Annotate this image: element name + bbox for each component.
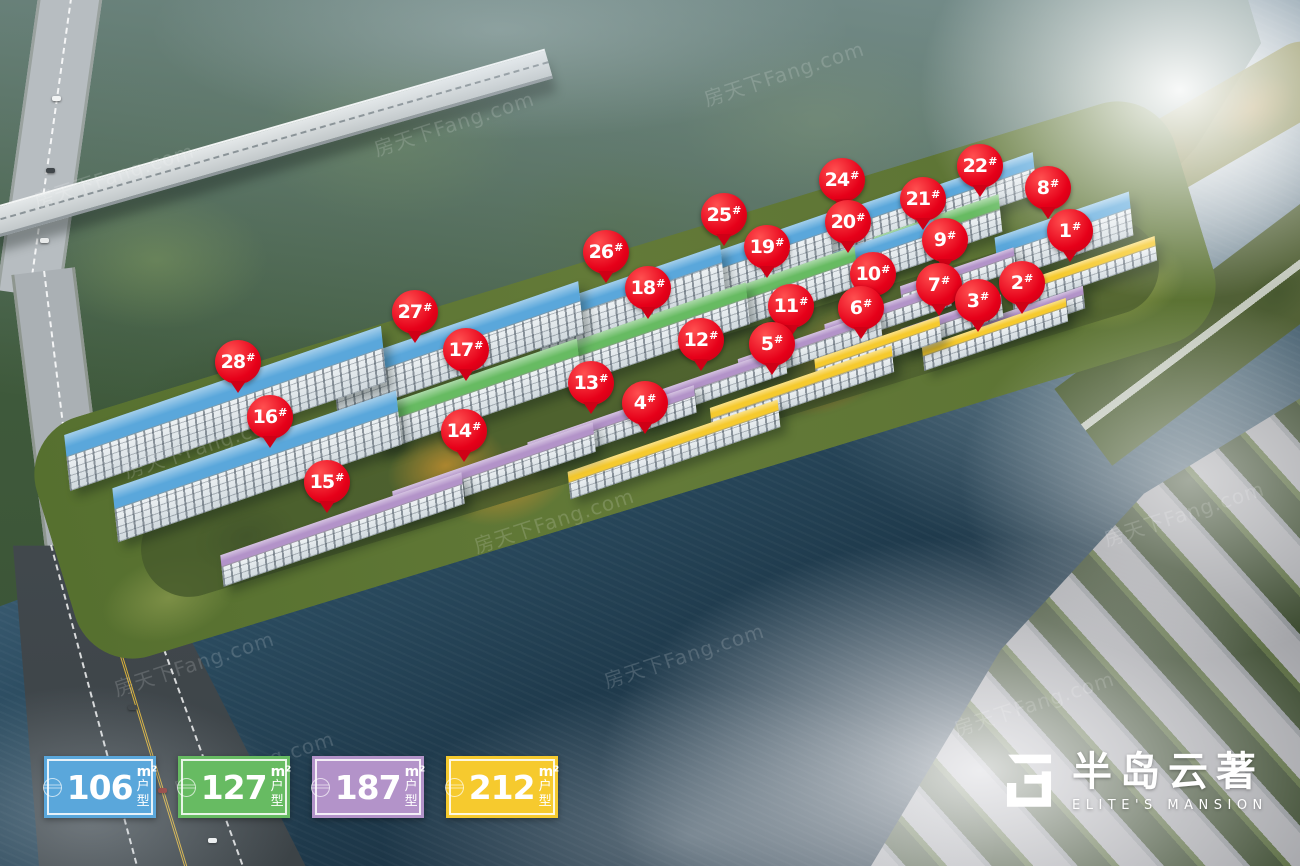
seal-icon: [311, 778, 330, 797]
legend-area-value: 212: [469, 771, 535, 804]
logo-english-name: ELITE'S MANSION: [1072, 798, 1268, 813]
building-marker-19[interactable]: 19#: [744, 225, 790, 269]
building-marker-22[interactable]: 22#: [957, 144, 1003, 188]
legend-area-value: 187: [335, 771, 401, 804]
building-marker-17[interactable]: 17#: [443, 328, 489, 372]
building-marker-5[interactable]: 5#: [749, 322, 795, 366]
building-marker-3[interactable]: 3#: [955, 279, 1001, 323]
seal-icon: [445, 778, 464, 797]
building-marker-27[interactable]: 27#: [392, 290, 438, 334]
legend-item-127: 127m²户型: [178, 756, 290, 818]
building-marker-14[interactable]: 14#: [441, 409, 487, 453]
building-marker-26[interactable]: 26#: [583, 230, 629, 274]
building-marker-21[interactable]: 21#: [900, 177, 946, 221]
building-marker-12[interactable]: 12#: [678, 318, 724, 362]
seal-icon: [43, 778, 62, 797]
legend-type-label: 户型: [137, 780, 158, 809]
building-marker-15[interactable]: 15#: [304, 460, 350, 504]
car: [46, 168, 55, 173]
building-marker-4[interactable]: 4#: [622, 381, 668, 425]
building-marker-8[interactable]: 8#: [1025, 166, 1071, 210]
legend: 106m²户型127m²户型187m²户型212m²户型: [44, 756, 558, 818]
building-marker-24[interactable]: 24#: [819, 158, 865, 202]
aerial-site-plan: 22#24#8#21#25#20#1#9#19#26#10#2#7#18#3#1…: [0, 0, 1300, 866]
building-marker-25[interactable]: 25#: [701, 193, 747, 237]
building-marker-13[interactable]: 13#: [568, 361, 614, 405]
legend-item-212: 212m²户型: [446, 756, 558, 818]
building-marker-2[interactable]: 2#: [999, 261, 1045, 305]
building-marker-20[interactable]: 20#: [825, 200, 871, 244]
building-marker-1[interactable]: 1#: [1047, 209, 1093, 253]
legend-area-value: 127: [201, 771, 267, 804]
building-marker-18[interactable]: 18#: [625, 266, 671, 310]
car: [40, 238, 49, 243]
project-logo: 半岛云著 ELITE'S MANSION: [1000, 750, 1268, 816]
building-marker-16[interactable]: 16#: [247, 395, 293, 439]
legend-type-label: 户型: [405, 780, 426, 809]
building-marker-28[interactable]: 28#: [215, 340, 261, 384]
legend-type-label: 户型: [539, 780, 560, 809]
legend-item-106: 106m²户型: [44, 756, 156, 818]
legend-type-label: 户型: [271, 780, 292, 809]
legend-item-187: 187m²户型: [312, 756, 424, 818]
building-marker-9[interactable]: 9#: [922, 218, 968, 262]
logo-mark-icon: [1000, 750, 1058, 816]
car: [208, 838, 217, 843]
building-marker-6[interactable]: 6#: [838, 286, 884, 330]
car: [128, 705, 137, 710]
legend-area-value: 106: [67, 771, 133, 804]
car: [52, 96, 61, 101]
logo-chinese-name: 半岛云著: [1072, 750, 1268, 794]
seal-icon: [177, 778, 196, 797]
